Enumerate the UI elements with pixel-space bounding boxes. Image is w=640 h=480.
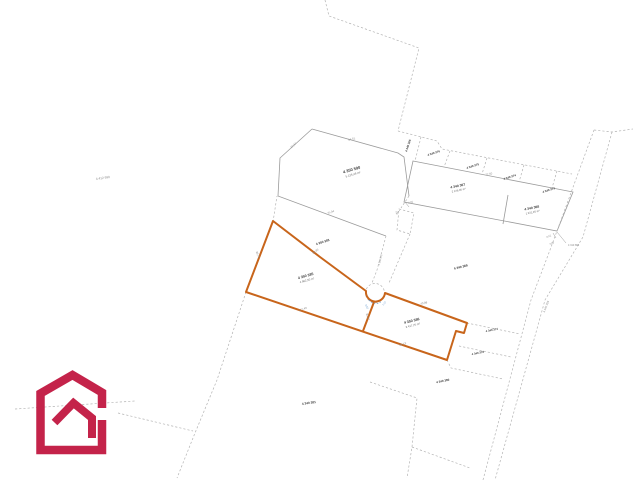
parcel-label: 4 340 375	[466, 162, 480, 170]
selected-parcels-outline[interactable]	[246, 221, 467, 360]
road-edge	[495, 132, 612, 480]
survey-point-label: 4 310 860	[568, 244, 580, 247]
boundary-line	[398, 131, 572, 174]
boundary-line	[177, 292, 246, 478]
parcel-label: 4 340 373	[542, 186, 556, 194]
boundary-line	[273, 196, 277, 222]
parcel-label: 4 412 990	[96, 175, 111, 181]
boundary-line	[412, 447, 470, 468]
road-parcel-label: 4 340 399	[542, 300, 550, 313]
boundary-line	[552, 171, 557, 188]
dimension-label: 40,89	[420, 300, 428, 306]
dimension-label: 37,47	[289, 141, 297, 149]
leader-line	[557, 232, 566, 243]
realestate-house-logo	[41, 375, 103, 450]
radius-value: 7,07	[382, 300, 388, 306]
parcel-boundaries-solid	[278, 129, 573, 236]
boundary-line	[594, 129, 633, 132]
dimension-label: 3,0	[394, 211, 398, 216]
parcel-label: 4 340 377	[485, 327, 498, 334]
cadastral-map: 7,07 3,50 4 412 990 4 350 590 5 125,48 m…	[0, 0, 640, 480]
dimension-label: 77,50	[485, 171, 493, 176]
boundary-line	[415, 137, 421, 161]
road-edge	[483, 130, 594, 480]
parcel-label: 4 340 380	[436, 378, 450, 385]
parcel-labels: 4 412 990 4 350 590 5 125,48 m² 4 350 38…	[96, 139, 580, 406]
dimension-label: 0,52	[546, 234, 552, 239]
cadastral-plan-canvas: 7,07 3,50 4 412 990 4 350 590 5 125,48 m…	[0, 0, 640, 480]
boundary-line	[370, 382, 417, 478]
parcel-label: 4 340 371	[378, 254, 384, 266]
dimension-label: 75,04	[327, 209, 335, 215]
logo-inner-roof	[55, 403, 93, 438]
boundary-line	[503, 195, 508, 224]
boundary-line	[444, 151, 450, 167]
boundary-line	[389, 234, 410, 283]
selected-parcel-boundary[interactable]	[246, 221, 467, 360]
logo-house-outline	[41, 375, 103, 450]
boundary-line	[397, 209, 414, 234]
boundary-line	[325, 0, 419, 131]
parcel-label: 4 340 376	[427, 149, 441, 157]
parcel-label: 4 350 383	[315, 238, 330, 246]
radius-value: 3,50	[364, 304, 369, 310]
parcel-label: 4 340 369	[453, 263, 468, 270]
boundary-line	[447, 360, 503, 379]
survey-annotations	[396, 202, 566, 243]
boundary-line	[118, 413, 193, 431]
boundary-line	[312, 129, 409, 196]
parcel-label: 4 340 378	[471, 350, 484, 357]
parcel-label: 4 340 381	[302, 400, 317, 406]
boundary-line	[519, 165, 524, 182]
parcel-label: 4 340 366	[404, 139, 412, 153]
boundary-line	[459, 346, 511, 357]
